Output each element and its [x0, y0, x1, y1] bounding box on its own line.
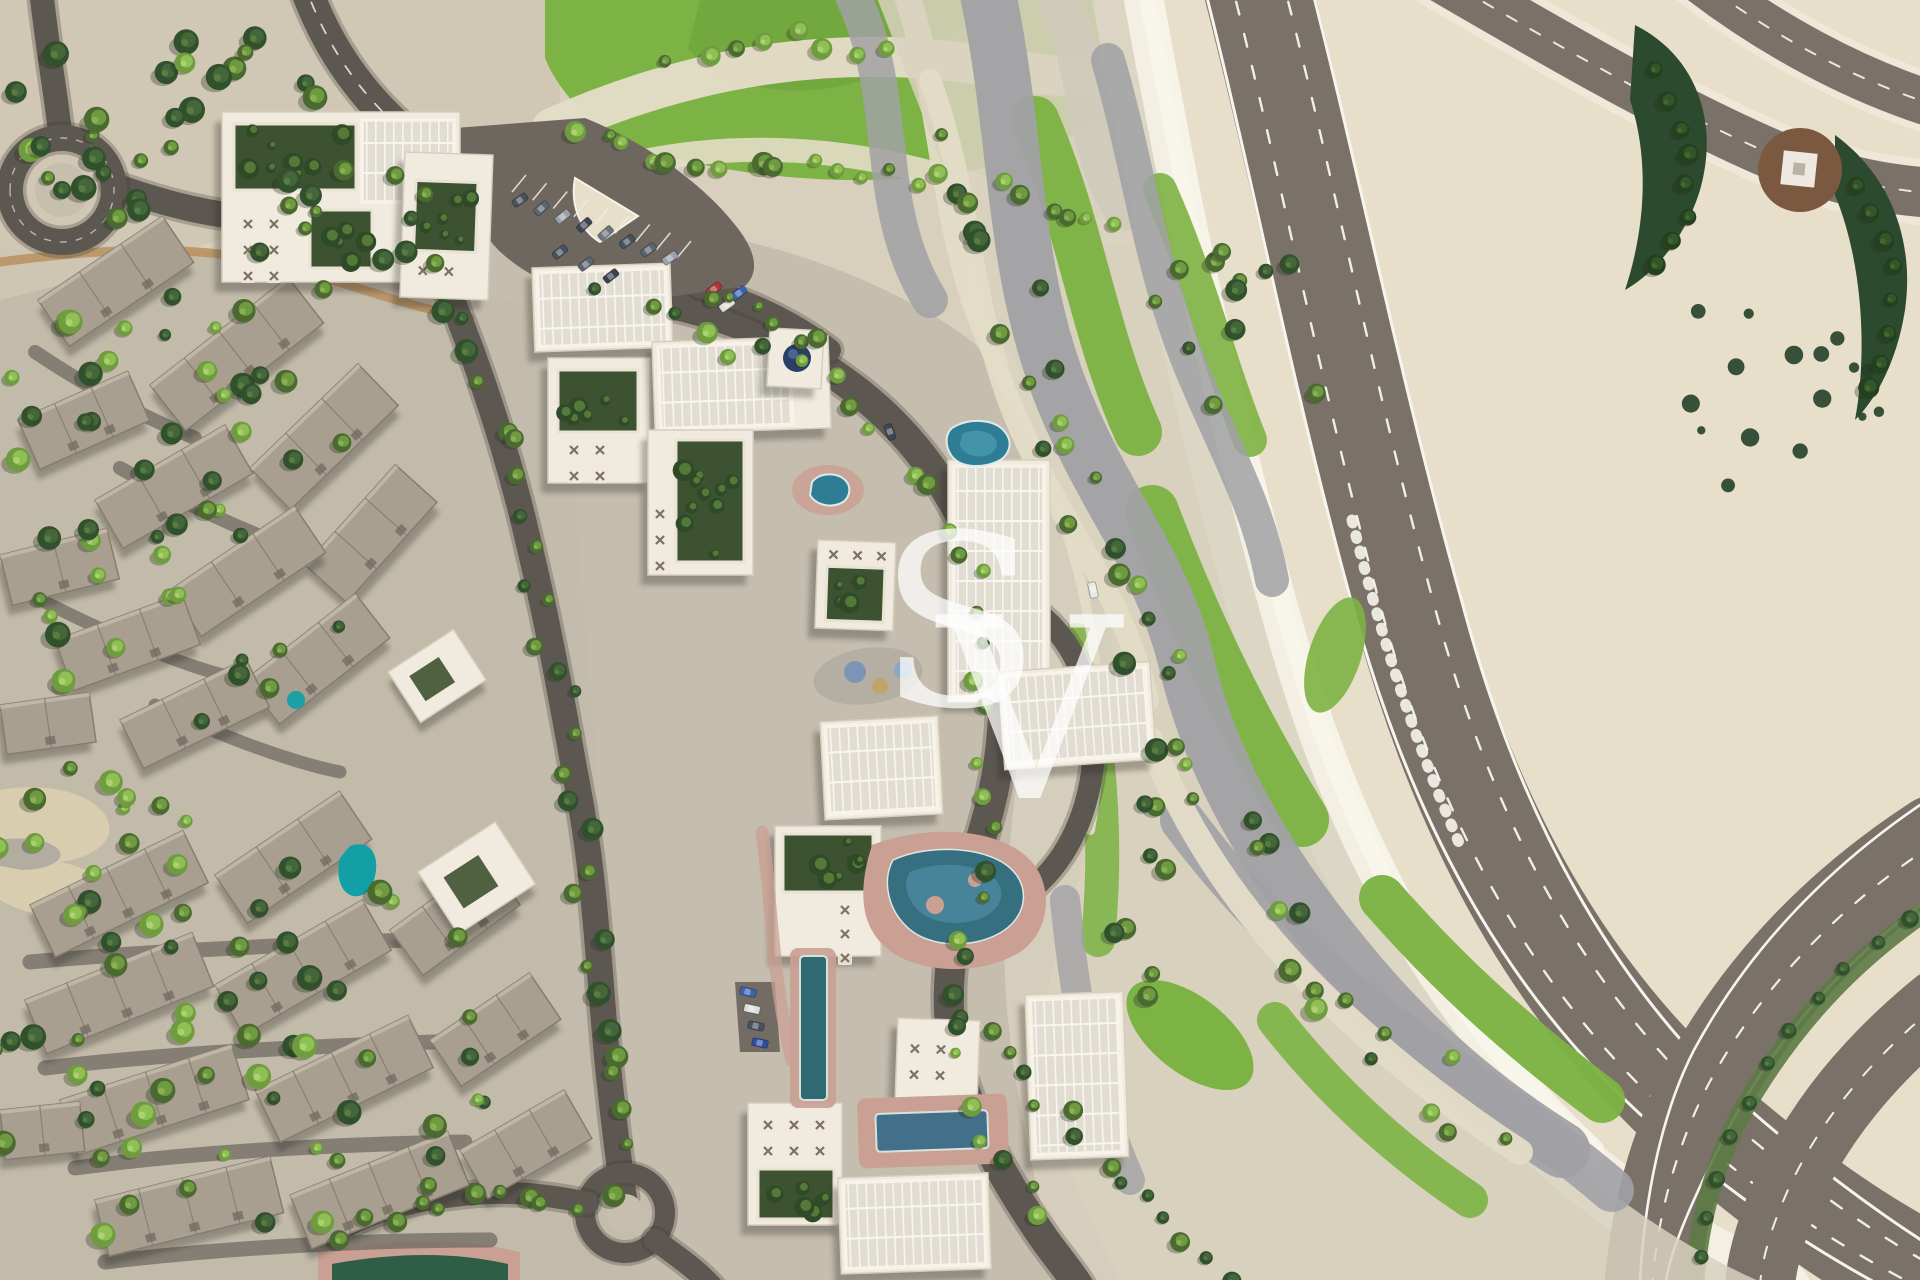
apartment-building	[831, 1173, 992, 1280]
watermark-letter-v: V	[935, 565, 1124, 858]
apartment-building	[393, 152, 493, 310]
masterplan-svg: S V	[0, 0, 1920, 1280]
apartment-building	[541, 358, 650, 493]
apartment-building	[741, 1103, 842, 1235]
aerial-masterplan-render: S V	[0, 0, 1920, 1280]
apartment-building	[641, 430, 753, 585]
